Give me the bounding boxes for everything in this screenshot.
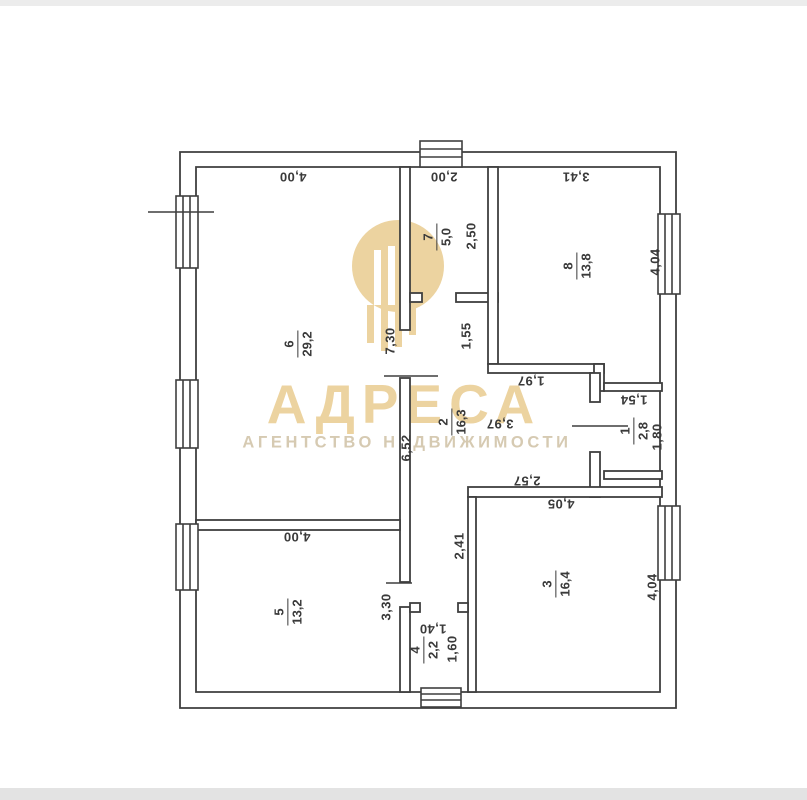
fraction-bar [452, 409, 453, 436]
dimension-label: 1,54 [621, 393, 648, 408]
fraction-bar [288, 599, 289, 626]
dimension-label: 2,57 [514, 474, 541, 489]
room-label-3: 316,4 [540, 571, 571, 598]
plan-labels-layer: 629,275,0813,8216,312,8316,4513,242,24,0… [0, 0, 807, 800]
room-label-4: 42,2 [408, 637, 439, 664]
fraction-bar [298, 331, 299, 358]
dimension-label: 1,55 [459, 323, 474, 350]
room-label-2: 216,3 [436, 409, 467, 436]
dimension-label: 4,04 [648, 249, 663, 276]
dimension-label: 4,00 [280, 170, 307, 185]
dimension-label: 4,04 [645, 574, 660, 601]
room-label-8: 813,8 [561, 253, 592, 280]
room-area: 16,4 [558, 571, 572, 596]
room-area: 13,2 [290, 599, 304, 624]
dimension-label: 6,52 [399, 435, 414, 462]
dimension-label: 2,41 [452, 533, 467, 560]
room-number: 2 [436, 418, 450, 425]
room-label-5: 513,2 [272, 599, 303, 626]
room-label-6: 629,2 [282, 331, 313, 358]
dimension-label: 4,00 [284, 530, 311, 545]
fraction-bar [577, 253, 578, 280]
fraction-bar [634, 418, 635, 445]
room-area: 16,3 [454, 409, 468, 434]
dimension-label: 1,60 [445, 636, 460, 663]
room-label-7: 75,0 [421, 224, 452, 251]
dimension-label: 2,00 [431, 170, 458, 185]
dimension-label: 1,80 [650, 424, 665, 451]
dimension-label: 1,97 [518, 374, 545, 389]
room-number: 6 [282, 340, 296, 347]
dimension-label: 3,97 [487, 417, 514, 432]
room-number: 1 [618, 427, 632, 434]
room-number: 4 [408, 646, 422, 653]
scanned-floorplan-page: АДРЕСА АГЕНТСТВО НЕДВИЖИМОСТИ [0, 0, 807, 800]
room-number: 3 [540, 580, 554, 587]
dimension-label: 3,41 [563, 170, 590, 185]
dimension-label: 4,05 [548, 497, 575, 512]
room-number: 8 [561, 262, 575, 269]
room-label-1: 12,8 [618, 418, 649, 445]
room-number: 7 [421, 233, 435, 240]
dimension-label: 7,30 [383, 328, 398, 355]
dimension-label: 2,50 [464, 223, 479, 250]
room-area: 13,8 [579, 253, 593, 278]
room-number: 5 [272, 608, 286, 615]
dimension-label: 1,40 [420, 622, 447, 637]
fraction-bar [437, 224, 438, 251]
room-area: 2,8 [636, 422, 650, 440]
fraction-bar [424, 637, 425, 664]
dimension-label: 3,30 [379, 594, 394, 621]
fraction-bar [556, 571, 557, 598]
room-area: 5,0 [439, 228, 453, 246]
room-area: 2,2 [426, 641, 440, 659]
room-area: 29,2 [300, 331, 314, 356]
